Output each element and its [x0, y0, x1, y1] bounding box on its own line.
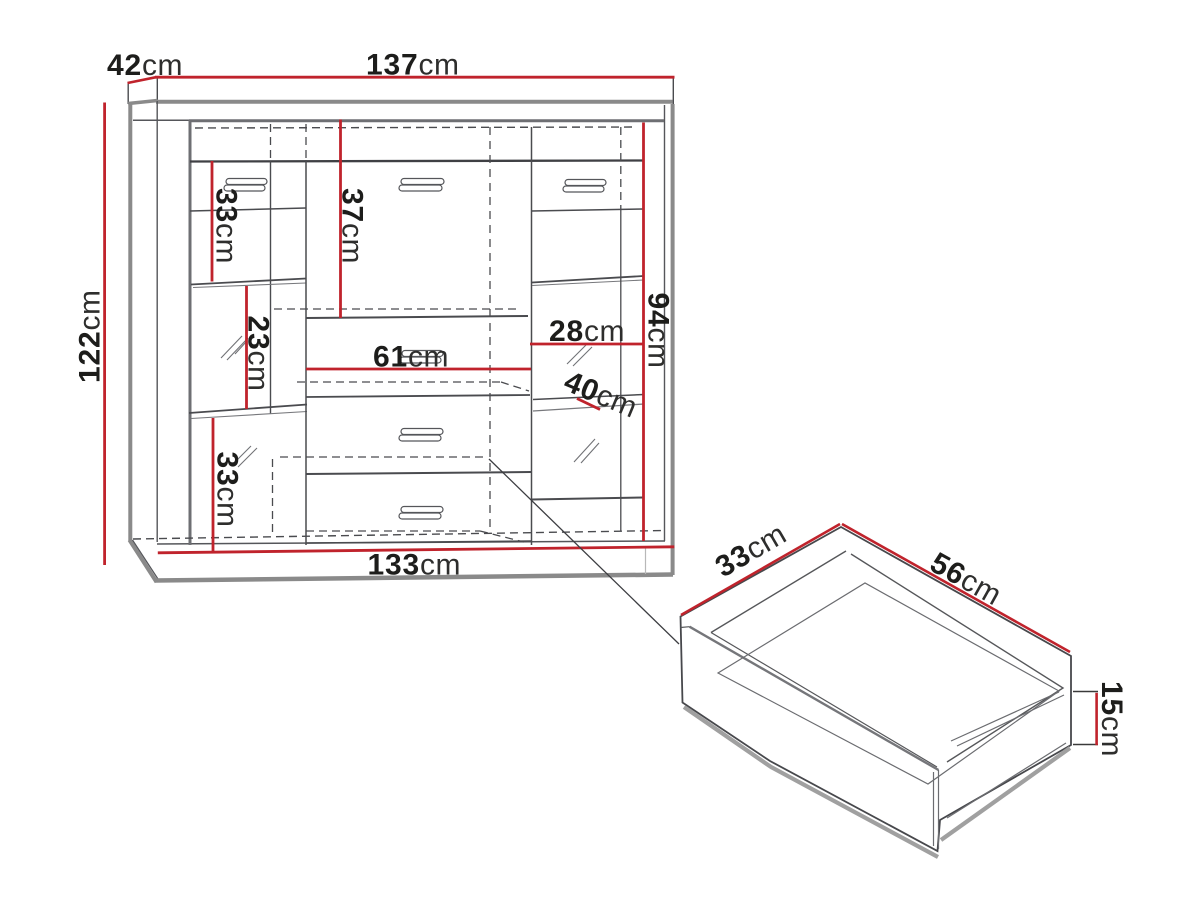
svg-text:137cm: 137cm [366, 49, 459, 82]
svg-text:33cm: 33cm [210, 188, 243, 264]
svg-text:28cm: 28cm [549, 315, 625, 348]
svg-text:42cm: 42cm [107, 49, 183, 82]
svg-text:133cm: 133cm [368, 549, 461, 582]
svg-text:37cm: 37cm [336, 188, 369, 264]
svg-text:33cm: 33cm [211, 452, 244, 528]
svg-text:122cm: 122cm [74, 290, 107, 383]
svg-text:61cm: 61cm [373, 341, 449, 374]
svg-text:15cm: 15cm [1095, 681, 1128, 757]
svg-text:94cm: 94cm [642, 293, 675, 369]
svg-text:23cm: 23cm [242, 316, 275, 392]
